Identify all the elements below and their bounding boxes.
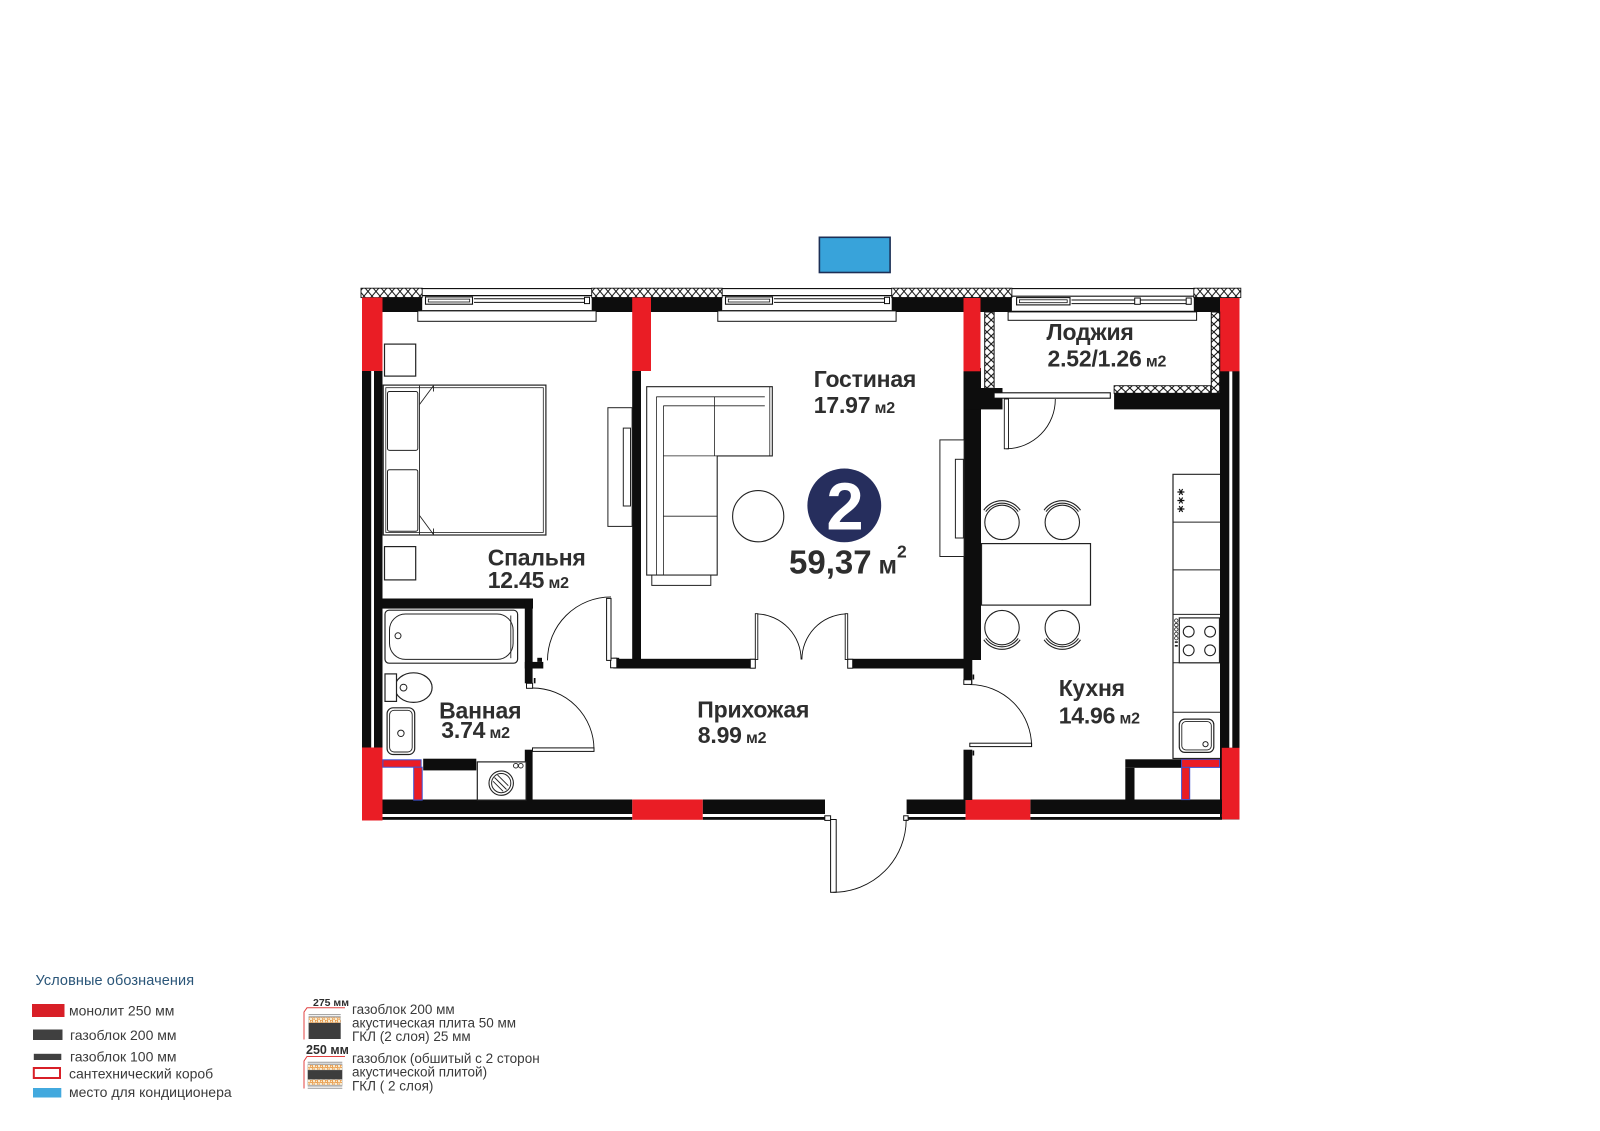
svg-text:2: 2 (826, 470, 863, 545)
svg-text:газоблок 100 мм: газоблок 100 мм (70, 1049, 177, 1065)
svg-text:ГКЛ ( 2 слоя): ГКЛ ( 2 слоя) (352, 1078, 433, 1093)
svg-text:монолит 250 мм: монолит 250 мм (69, 1003, 174, 1019)
svg-text:сантехнический короб: сантехнический короб (69, 1066, 213, 1082)
svg-text:газоблок 200 мм: газоблок 200 мм (70, 1027, 177, 1043)
svg-text:акустической плитой): акустической плитой) (352, 1064, 487, 1079)
svg-text:ГКЛ (2 слоя) 25 мм: ГКЛ (2 слоя) 25 мм (352, 1029, 471, 1044)
svg-text:Условные обозначения: Условные обозначения (36, 973, 195, 989)
svg-text:Прихожая: Прихожая (697, 697, 809, 723)
svg-text:275 мм: 275 мм (313, 997, 349, 1009)
svg-text:Кухня: Кухня (1059, 675, 1125, 701)
svg-text:Гостиная: Гостиная (814, 366, 916, 392)
svg-text:250 мм: 250 мм (306, 1043, 349, 1057)
svg-text:место для кондиционера: место для кондиционера (69, 1084, 232, 1100)
svg-text:Лоджия: Лоджия (1047, 319, 1134, 345)
